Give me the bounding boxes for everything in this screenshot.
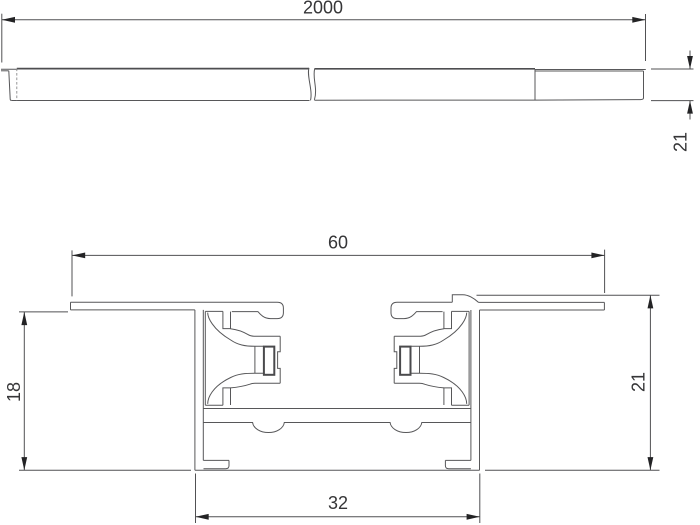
svg-text:32: 32 (328, 493, 348, 513)
svg-text:21: 21 (628, 372, 648, 392)
svg-text:2000: 2000 (303, 0, 343, 17)
svg-text:21: 21 (670, 132, 690, 152)
svg-text:18: 18 (4, 382, 24, 402)
svg-text:60: 60 (328, 232, 348, 252)
